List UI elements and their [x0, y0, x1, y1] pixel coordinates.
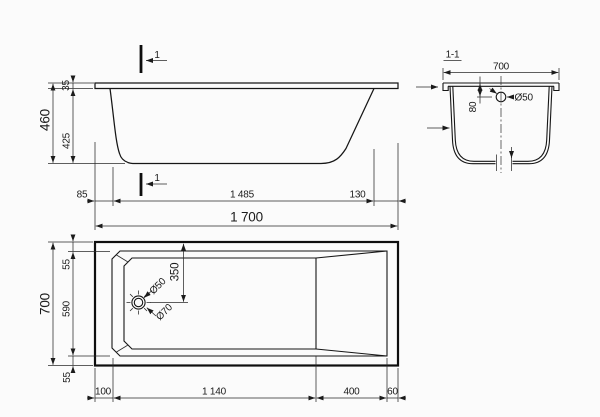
rim-flange-right [554, 83, 559, 91]
corner-transition [117, 255, 129, 262]
dim-text-drain-offset: 80 [468, 101, 479, 112]
dim-text-depth: 425 [61, 132, 72, 149]
slope-edge-top [316, 251, 387, 258]
section-view: 1-1 700 80 [416, 50, 559, 174]
slope-edge-bottom [316, 349, 387, 356]
corner-transition [117, 345, 129, 352]
dim-text-plan-width: 700 [37, 293, 52, 315]
wall-outer-left [450, 86, 496, 163]
section-geometry [443, 76, 559, 173]
dim-text-right-offset: 60 [387, 387, 398, 398]
section-cut-label-bottom: 1 [154, 173, 160, 184]
side-view: 1 1 460 35 425 [37, 45, 406, 230]
dim-text-left-offset-plan: 100 [95, 387, 112, 398]
dim-text-drain-from-edge: 350 [169, 263, 181, 282]
side-view-geometry [95, 83, 398, 164]
section-cut-markers: 1 1 [141, 45, 167, 196]
dim-text-rim-top: 55 [61, 259, 72, 270]
dim-text-section-width: 700 [493, 62, 510, 73]
dim-text-rim-bottom: 55 [62, 372, 73, 383]
section-cut-label-top: 1 [154, 50, 160, 61]
dim-text-drain-outer: Ø70 [154, 302, 175, 323]
section-dimensions: 700 80 Ø50 [416, 62, 559, 129]
dim-text-floor-length: 1 140 [202, 387, 227, 398]
drain-circle-inner [134, 298, 142, 306]
rim-outline [95, 242, 398, 366]
opening-outline [112, 251, 387, 356]
tub-body-profile [110, 89, 374, 164]
plan-geometry [95, 242, 398, 366]
drain-symbol [127, 291, 151, 315]
bathtub-technical-drawing: 1 1 460 35 425 [0, 0, 600, 417]
section-title: 1-1 [446, 50, 460, 61]
floor-outline [124, 258, 316, 349]
dim-text-overall-height: 460 [37, 109, 52, 131]
tub-rim-profile [95, 83, 398, 89]
dim-text-slope-run-plan: 400 [343, 387, 360, 398]
wall-inner-left [453, 86, 496, 161]
dim-text-bottom-length: 1 485 [230, 190, 255, 201]
side-view-dimensions: 460 35 425 85 1 485 130 [37, 76, 406, 231]
dim-text-drain-inner: Ø50 [148, 276, 169, 297]
rim-flange-left [443, 83, 448, 91]
dim-text-inner-width: 590 [61, 300, 72, 317]
dim-text-overall-length: 1 700 [230, 210, 263, 225]
leader-line [490, 89, 497, 94]
dim-text-slope-run: 130 [349, 190, 366, 201]
plan-view: Ø50 Ø70 350 700 55 590 55 [37, 235, 406, 403]
drain-sunburst [127, 291, 151, 315]
dim-text-rim-thickness: 35 [61, 80, 72, 91]
dim-text-drain-diameter: Ø50 [515, 93, 534, 104]
dim-text-left-offset: 85 [77, 190, 88, 201]
plan-dimensions: Ø50 Ø70 350 700 55 590 55 [37, 235, 406, 403]
